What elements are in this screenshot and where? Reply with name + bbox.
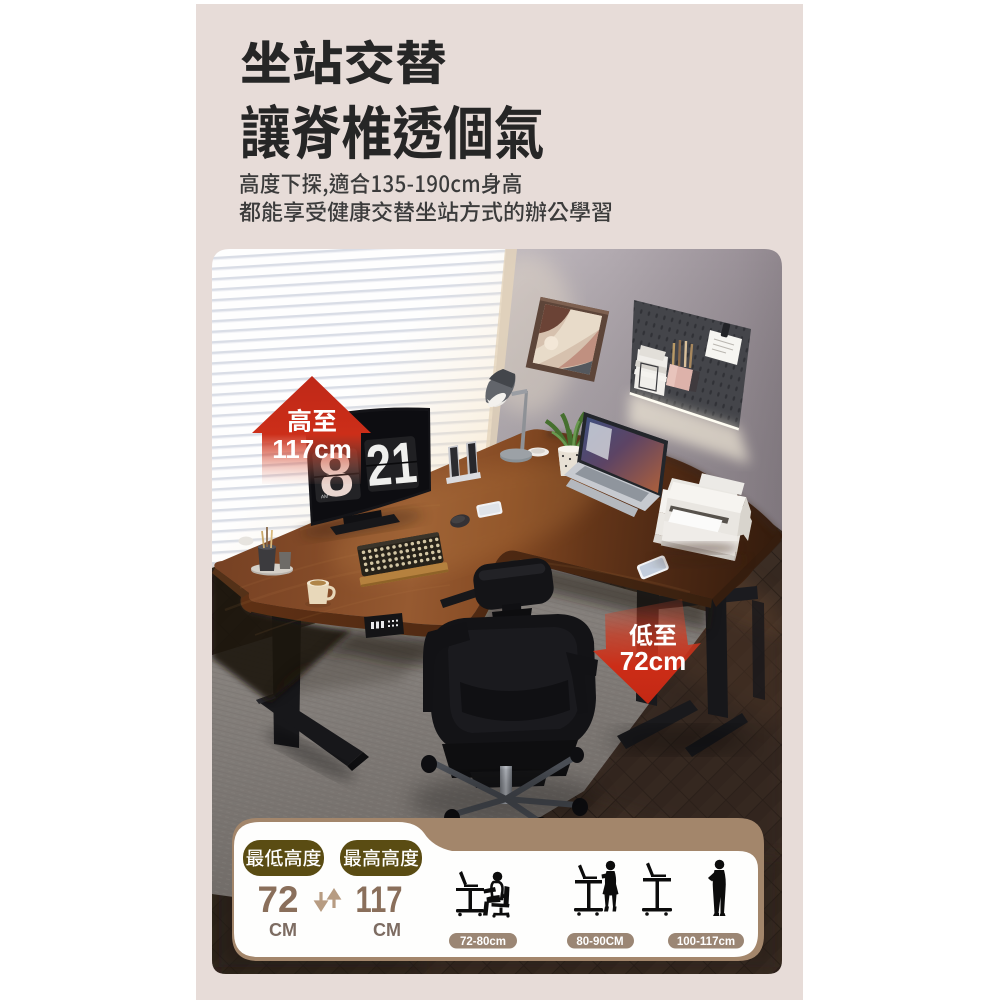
svg-text:80-90CM: 80-90CM — [576, 936, 623, 948]
svg-text:100-117cm: 100-117cm — [677, 936, 735, 948]
svg-text:72-80cm: 72-80cm — [460, 936, 506, 948]
svg-text:117cm: 117cm — [272, 434, 352, 464]
svg-text:72: 72 — [258, 879, 299, 920]
svg-text:CM: CM — [269, 920, 297, 940]
svg-text:CM: CM — [373, 920, 401, 940]
svg-text:AM: AM — [321, 494, 329, 501]
svg-text:72cm: 72cm — [620, 646, 687, 676]
svg-text:117: 117 — [356, 879, 403, 920]
